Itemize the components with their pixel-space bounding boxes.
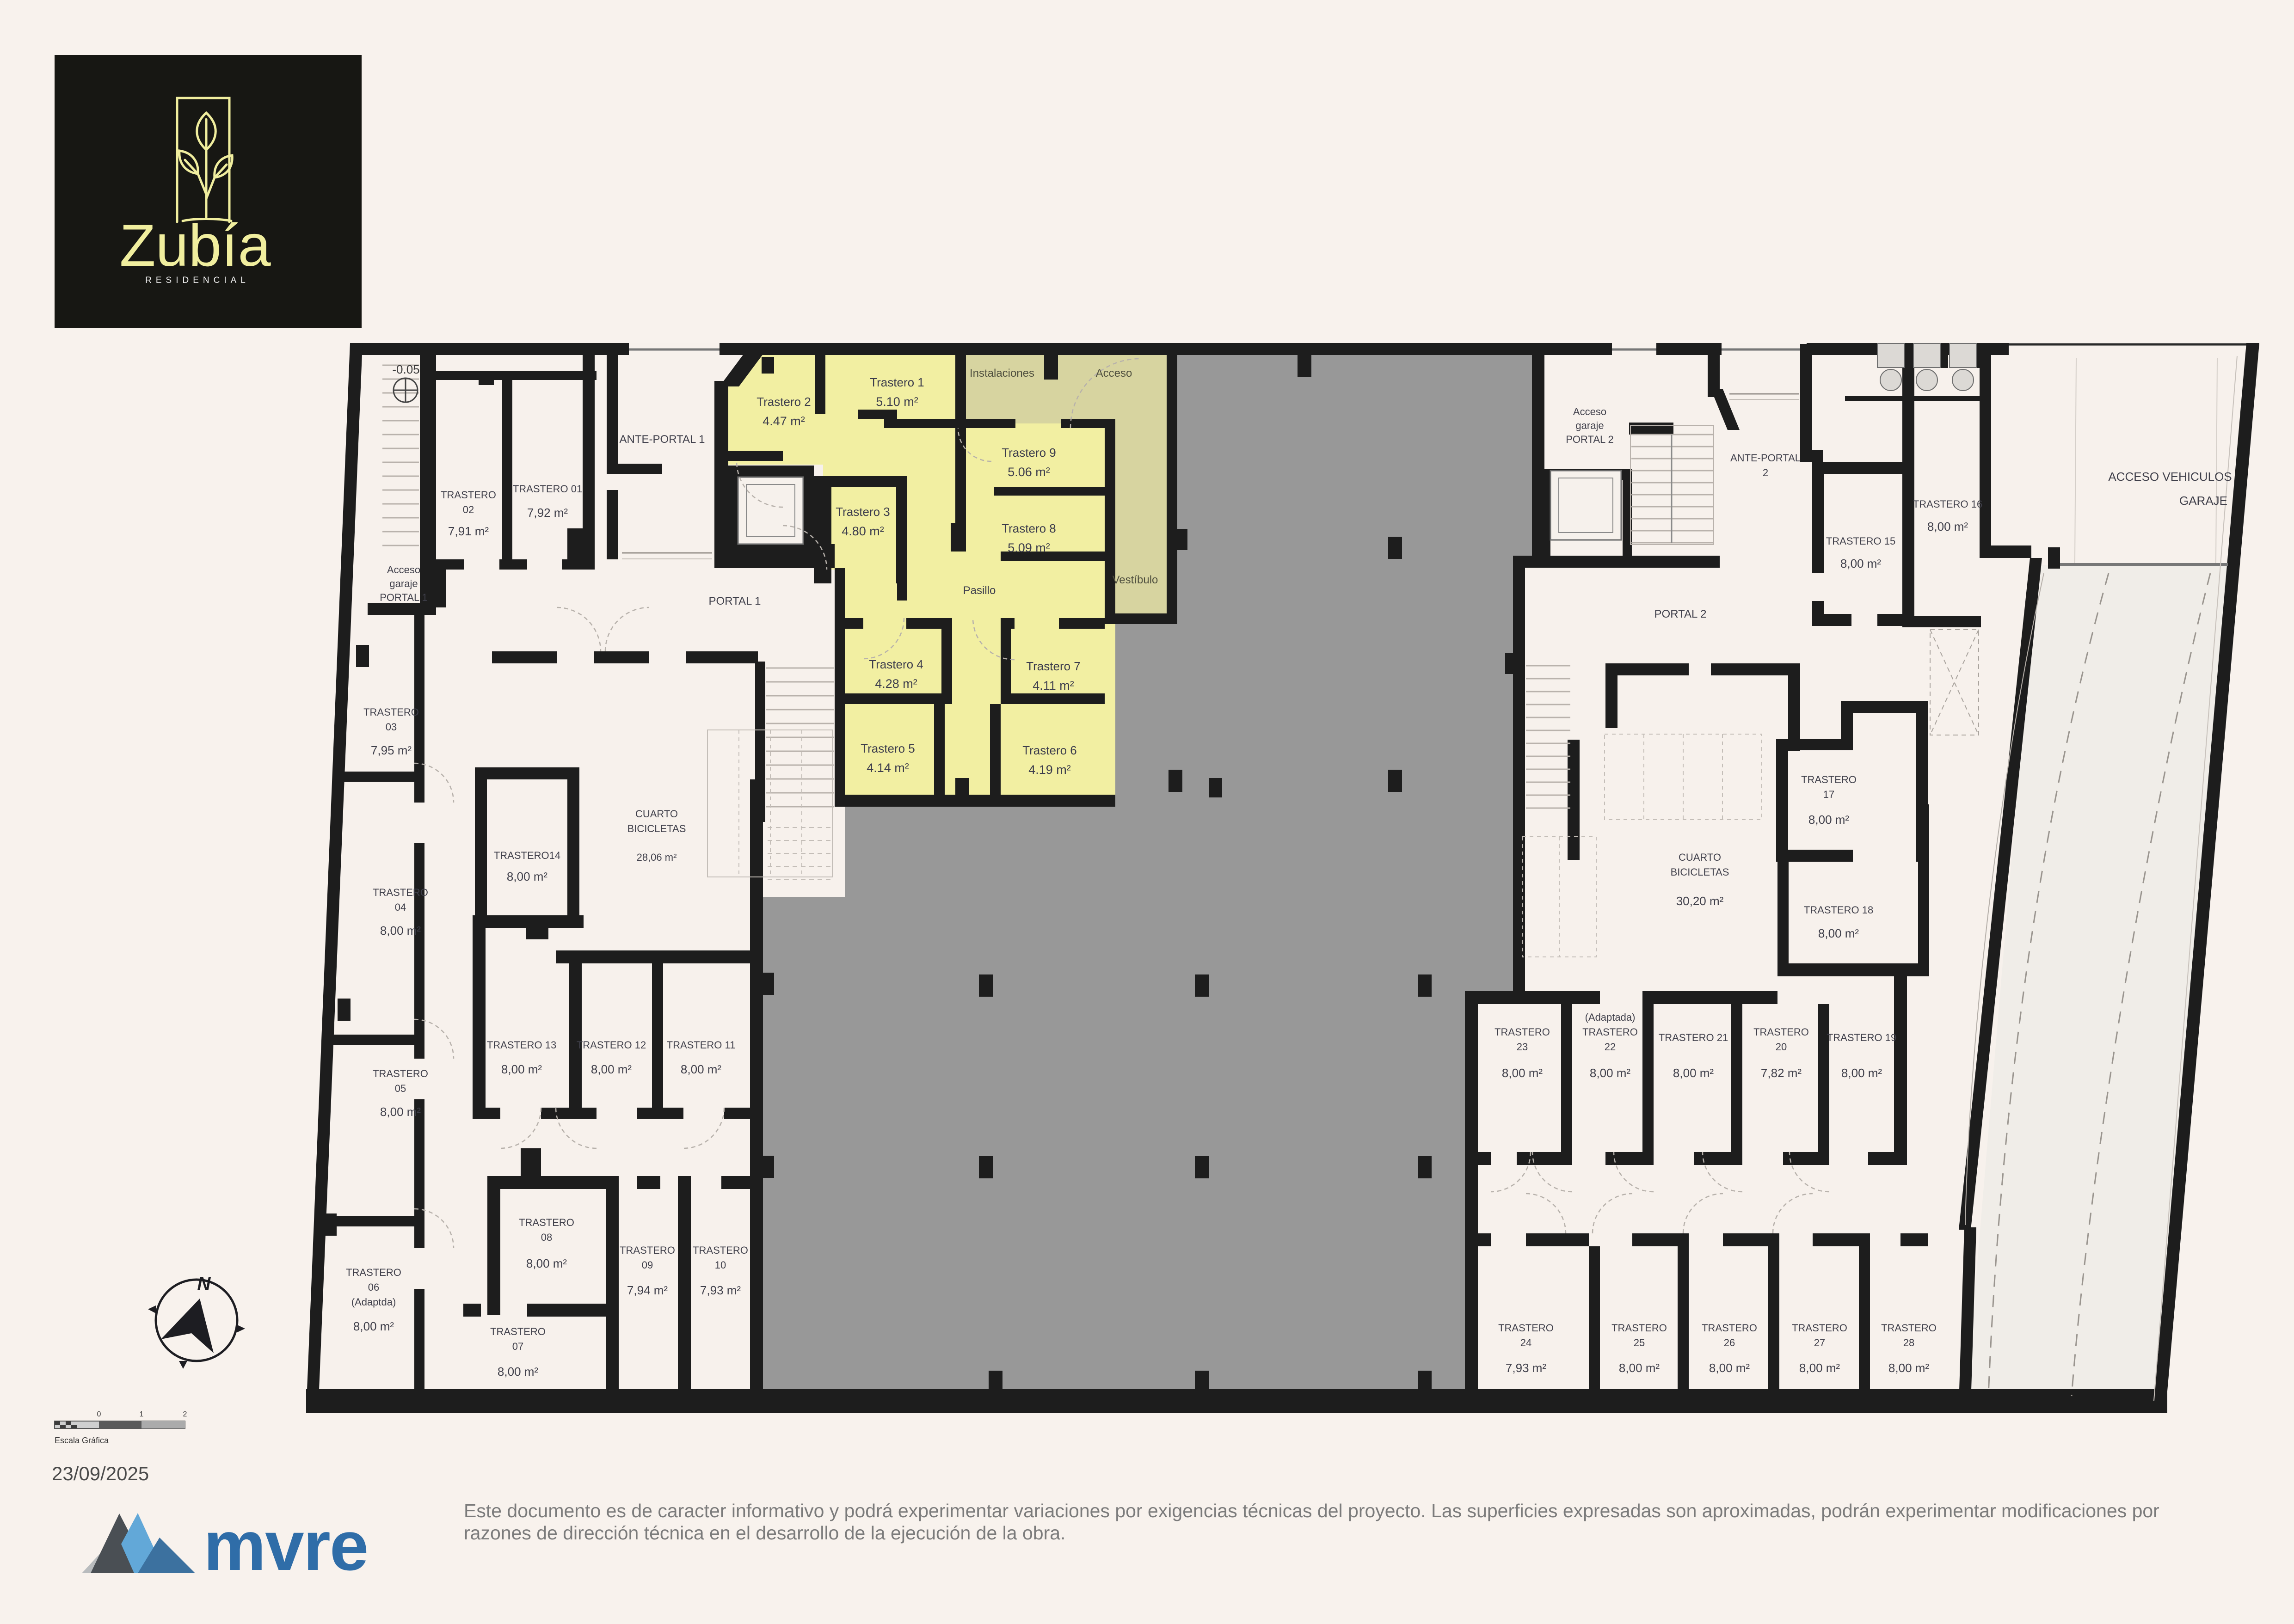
svg-text:TRASTERO: TRASTERO <box>620 1244 675 1256</box>
svg-text:4.28 m²: 4.28 m² <box>875 677 917 691</box>
svg-text:7,82 m²: 7,82 m² <box>1761 1066 1802 1080</box>
svg-text:8,00 m²: 8,00 m² <box>380 924 421 938</box>
svg-text:8,00 m²: 8,00 m² <box>1590 1066 1630 1080</box>
svg-text:17: 17 <box>1823 789 1834 800</box>
svg-text:TRASTERO: TRASTERO <box>1753 1026 1809 1038</box>
svg-text:26: 26 <box>1724 1337 1735 1348</box>
svg-text:Trastero 2: Trastero 2 <box>756 395 811 409</box>
svg-text:(Adaptada): (Adaptada) <box>1585 1011 1636 1023</box>
svg-text:7,93 m²: 7,93 m² <box>700 1283 741 1297</box>
svg-text:8,00 m²: 8,00 m² <box>1709 1361 1750 1375</box>
svg-text:Pasillo: Pasillo <box>963 584 996 597</box>
svg-text:garaje: garaje <box>1575 420 1604 431</box>
svg-text:TRASTERO: TRASTERO <box>373 1068 428 1079</box>
svg-text:TRASTERO: TRASTERO <box>1801 774 1857 785</box>
svg-text:PORTAL 1: PORTAL 1 <box>380 592 428 603</box>
svg-text:TRASTERO 12: TRASTERO 12 <box>577 1039 646 1051</box>
svg-text:Acceso: Acceso <box>1573 406 1606 417</box>
svg-text:2: 2 <box>183 1410 187 1418</box>
svg-text:Trastero 8: Trastero 8 <box>1002 521 1056 535</box>
svg-text:22: 22 <box>1605 1041 1616 1053</box>
svg-text:CUARTO: CUARTO <box>635 808 678 820</box>
svg-text:PORTAL 2: PORTAL 2 <box>1566 434 1614 445</box>
svg-text:TRASTERO: TRASTERO <box>1611 1322 1667 1334</box>
svg-text:20: 20 <box>1776 1041 1787 1053</box>
svg-text:23: 23 <box>1517 1041 1528 1053</box>
svg-text:TRASTERO 15: TRASTERO 15 <box>1826 535 1895 547</box>
svg-text:Trastero 4: Trastero 4 <box>869 657 923 671</box>
svg-text:TRASTERO 01: TRASTERO 01 <box>513 483 582 495</box>
svg-text:8,00 m²: 8,00 m² <box>1619 1361 1660 1375</box>
svg-text:Zubía: Zubía <box>119 213 271 279</box>
svg-text:ANTE-PORTAL: ANTE-PORTAL <box>1730 452 1801 464</box>
svg-text:BICICLETAS: BICICLETAS <box>627 823 686 834</box>
svg-text:23/09/2025: 23/09/2025 <box>52 1463 149 1484</box>
svg-text:05: 05 <box>395 1083 406 1094</box>
svg-text:7,95 m²: 7,95 m² <box>371 743 412 757</box>
svg-text:2: 2 <box>1763 467 1768 478</box>
svg-text:TRASTERO 18: TRASTERO 18 <box>1804 904 1873 916</box>
svg-text:TRASTERO: TRASTERO <box>441 489 496 501</box>
svg-text:8,00 m²: 8,00 m² <box>1841 1066 1882 1080</box>
svg-text:TRASTERO 16: TRASTERO 16 <box>1913 498 1982 510</box>
svg-text:8,00 m²: 8,00 m² <box>380 1105 421 1119</box>
svg-text:Este documento es de caracter: Este documento es de caracter informativ… <box>464 1500 2159 1521</box>
svg-text:03: 03 <box>386 721 397 733</box>
svg-text:10: 10 <box>715 1259 726 1271</box>
svg-text:06: 06 <box>368 1281 379 1293</box>
svg-text:Vestíbulo: Vestíbulo <box>1113 574 1158 586</box>
svg-text:ACCESO VEHICULOS: ACCESO VEHICULOS <box>2108 470 2232 484</box>
svg-text:28,06 m²: 28,06 m² <box>637 852 677 863</box>
svg-text:TRASTERO14: TRASTERO14 <box>494 850 560 861</box>
svg-text:TRASTERO 21: TRASTERO 21 <box>1659 1032 1728 1043</box>
svg-text:Trastero 9: Trastero 9 <box>1002 446 1056 460</box>
svg-text:24: 24 <box>1520 1337 1531 1348</box>
svg-text:25: 25 <box>1634 1337 1645 1348</box>
svg-text:8,00 m²: 8,00 m² <box>1799 1361 1840 1375</box>
svg-text:TRASTERO: TRASTERO <box>1494 1026 1550 1038</box>
svg-text:08: 08 <box>541 1232 552 1243</box>
svg-text:-0.05: -0.05 <box>392 362 419 376</box>
svg-text:TRASTERO: TRASTERO <box>693 1244 748 1256</box>
svg-text:7,93 m²: 7,93 m² <box>1506 1361 1546 1375</box>
svg-text:Acceso: Acceso <box>387 564 420 576</box>
svg-text:0: 0 <box>97 1410 101 1418</box>
svg-text:PORTAL 1: PORTAL 1 <box>709 595 761 607</box>
svg-text:8,00 m²: 8,00 m² <box>1888 1361 1929 1375</box>
svg-text:7,91 m²: 7,91 m² <box>448 524 489 538</box>
svg-text:5.09 m²: 5.09 m² <box>1008 541 1050 555</box>
svg-text:04: 04 <box>395 901 406 913</box>
svg-text:TRASTERO: TRASTERO <box>519 1217 574 1228</box>
svg-text:TRASTERO: TRASTERO <box>373 887 428 898</box>
svg-text:TRASTERO: TRASTERO <box>1498 1322 1554 1334</box>
svg-text:8,00 m²: 8,00 m² <box>507 870 547 883</box>
svg-text:28: 28 <box>1903 1337 1914 1348</box>
svg-text:ANTE-PORTAL 1: ANTE-PORTAL 1 <box>620 433 705 446</box>
svg-text:TRASTERO: TRASTERO <box>1792 1322 1847 1334</box>
svg-text:8,00 m²: 8,00 m² <box>353 1319 394 1333</box>
svg-text:09: 09 <box>642 1259 653 1271</box>
svg-text:5.10 m²: 5.10 m² <box>876 395 918 409</box>
svg-text:4.14 m²: 4.14 m² <box>867 761 909 775</box>
svg-text:07: 07 <box>512 1341 523 1352</box>
svg-text:Trastero 5: Trastero 5 <box>861 742 915 755</box>
svg-text:7,92 m²: 7,92 m² <box>527 506 568 520</box>
svg-text:4.19 m²: 4.19 m² <box>1028 763 1071 777</box>
svg-text:8,00 m²: 8,00 m² <box>501 1062 542 1076</box>
svg-text:TRASTERO: TRASTERO <box>346 1267 401 1278</box>
svg-text:(Adaptda): (Adaptda) <box>351 1296 396 1308</box>
svg-text:8,00 m²: 8,00 m² <box>1927 520 1968 533</box>
svg-text:Trastero 7: Trastero 7 <box>1026 659 1081 673</box>
svg-text:4.80 m²: 4.80 m² <box>842 524 884 538</box>
svg-text:mvre: mvre <box>203 1507 368 1585</box>
svg-text:8,00 m²: 8,00 m² <box>681 1062 721 1076</box>
svg-text:TRASTERO 13: TRASTERO 13 <box>487 1039 556 1051</box>
svg-text:8,00 m²: 8,00 m² <box>1840 557 1881 570</box>
svg-text:5.06 m²: 5.06 m² <box>1008 465 1050 479</box>
svg-text:Trastero 3: Trastero 3 <box>836 505 890 519</box>
svg-text:Instalaciones: Instalaciones <box>970 367 1034 380</box>
svg-text:N: N <box>197 1274 211 1294</box>
svg-text:8,00 m²: 8,00 m² <box>498 1365 538 1379</box>
svg-text:CUARTO: CUARTO <box>1679 852 1721 863</box>
svg-text:4.11 m²: 4.11 m² <box>1033 679 1074 692</box>
svg-text:TRASTERO 19: TRASTERO 19 <box>1827 1032 1896 1043</box>
svg-text:8,00 m²: 8,00 m² <box>1673 1066 1714 1080</box>
svg-text:8,00 m²: 8,00 m² <box>591 1062 632 1076</box>
svg-text:02: 02 <box>463 504 474 515</box>
svg-text:TRASTERO: TRASTERO <box>363 706 419 718</box>
svg-text:razones de dirección técnica e: razones de dirección técnica en el desar… <box>464 1522 1065 1544</box>
svg-text:TRASTERO: TRASTERO <box>1702 1322 1757 1334</box>
svg-text:Trastero 1: Trastero 1 <box>870 375 924 389</box>
svg-text:Trastero 6: Trastero 6 <box>1022 743 1077 757</box>
svg-text:TRASTERO 11: TRASTERO 11 <box>667 1039 736 1051</box>
svg-text:1: 1 <box>140 1410 144 1418</box>
svg-text:Escala Gráfica: Escala Gráfica <box>55 1436 109 1445</box>
svg-text:7,94 m²: 7,94 m² <box>627 1283 668 1297</box>
svg-text:GARAJE: GARAJE <box>2179 494 2227 508</box>
svg-text:8,00 m²: 8,00 m² <box>526 1256 567 1270</box>
svg-text:8,00 m²: 8,00 m² <box>1818 926 1859 940</box>
svg-text:Acceso: Acceso <box>1096 367 1132 380</box>
svg-text:garaje: garaje <box>389 578 418 589</box>
svg-text:8,00 m²: 8,00 m² <box>1808 813 1849 827</box>
svg-text:PORTAL 2: PORTAL 2 <box>1654 608 1707 620</box>
svg-text:TRASTERO: TRASTERO <box>1881 1322 1937 1334</box>
svg-text:8,00 m²: 8,00 m² <box>1502 1066 1543 1080</box>
svg-text:TRASTERO: TRASTERO <box>1582 1026 1638 1038</box>
svg-text:30,20 m²: 30,20 m² <box>1676 894 1724 908</box>
svg-text:RESIDENCIAL: RESIDENCIAL <box>145 276 250 285</box>
svg-text:BICICLETAS: BICICLETAS <box>1671 866 1729 878</box>
svg-text:TRASTERO: TRASTERO <box>490 1326 546 1337</box>
svg-text:4.47 m²: 4.47 m² <box>763 414 805 428</box>
svg-text:27: 27 <box>1814 1337 1825 1348</box>
